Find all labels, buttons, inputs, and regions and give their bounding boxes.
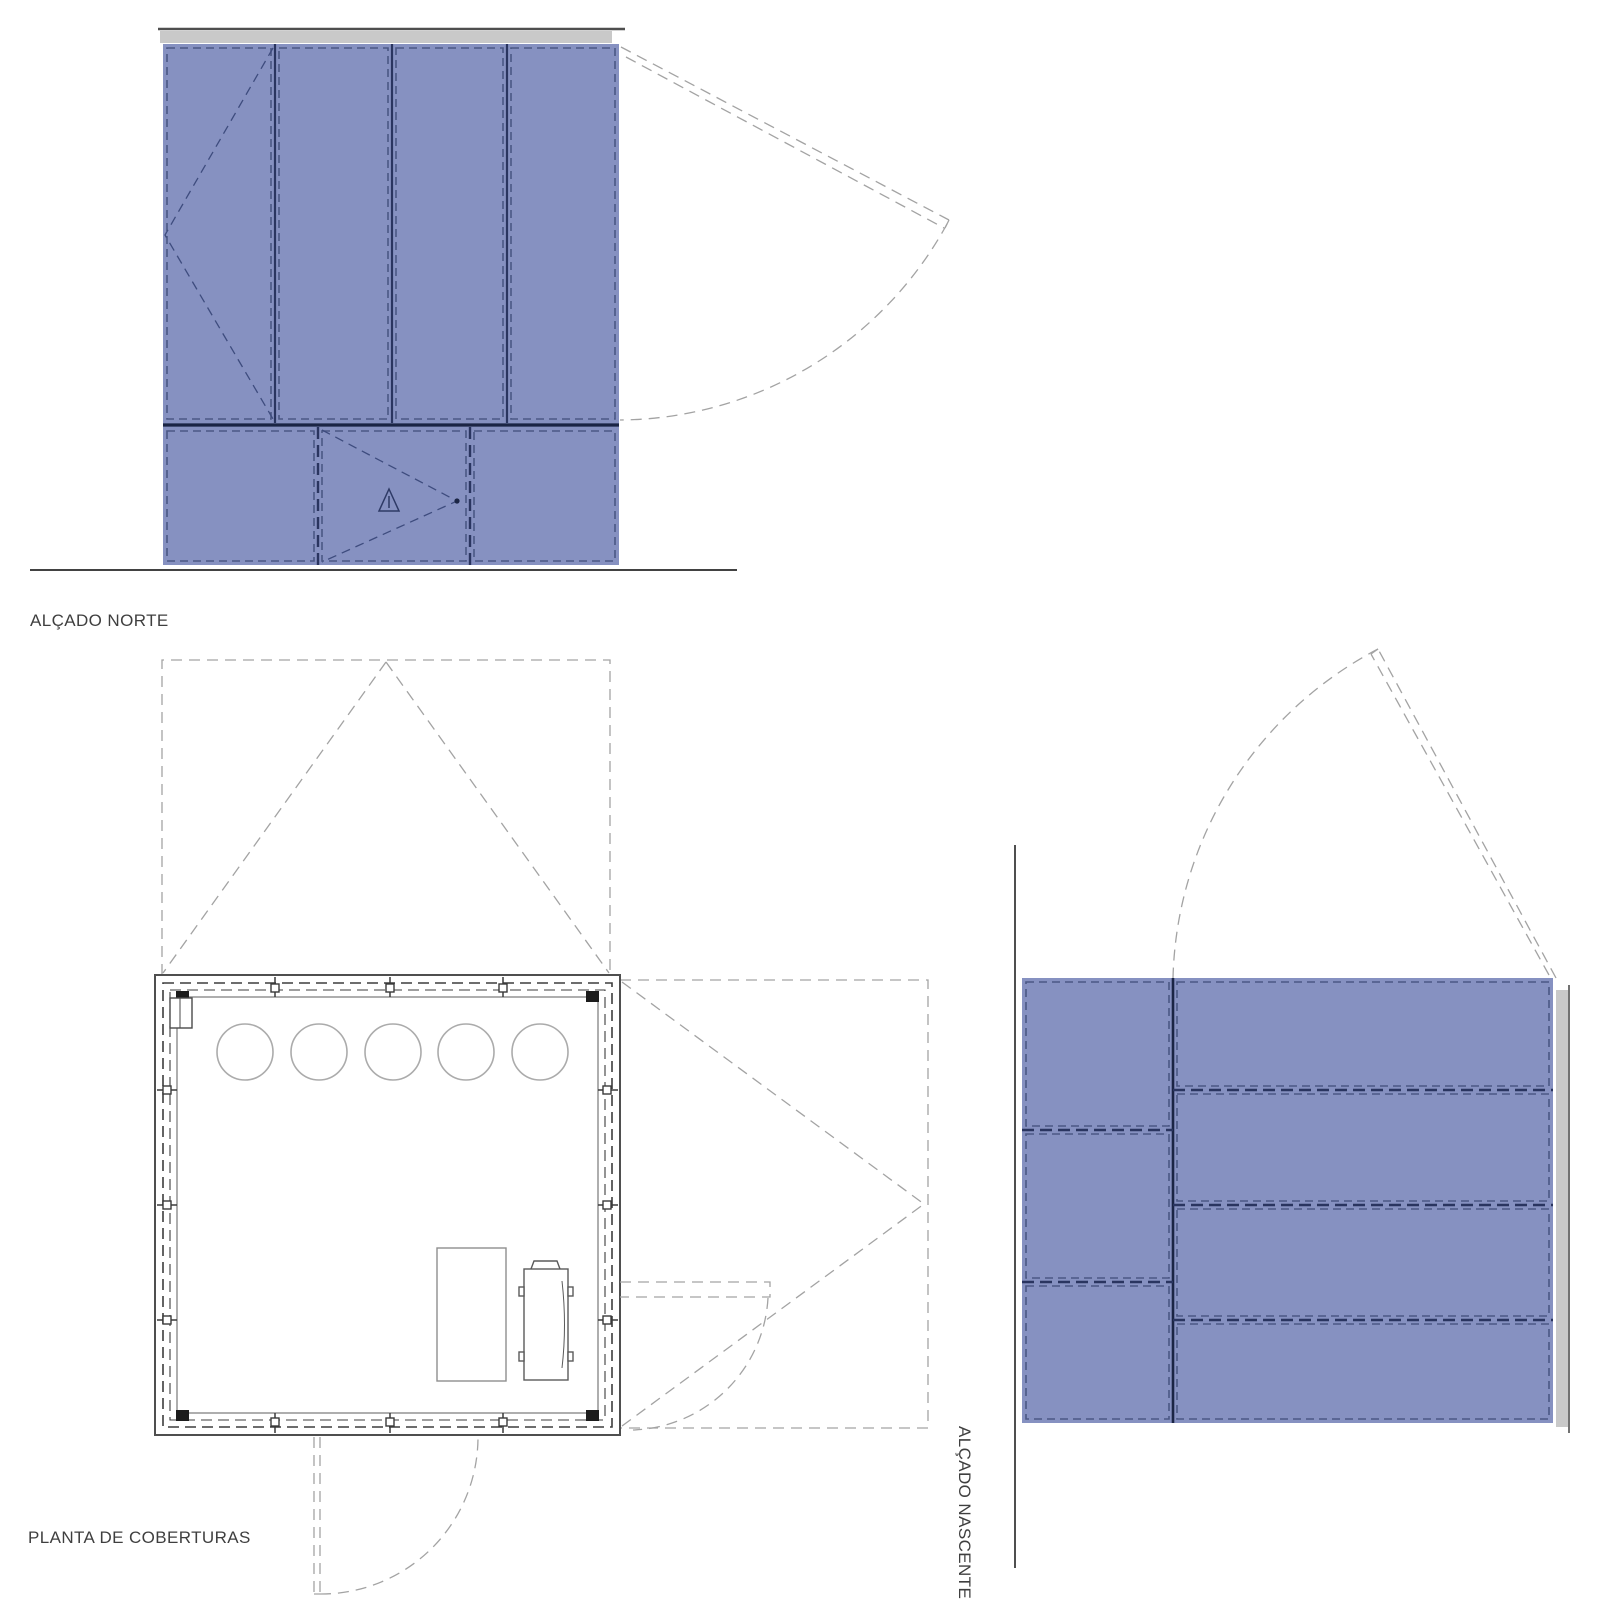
north-elevation-drawing [30, 29, 949, 570]
roof-plan-label: PLANTA DE COBERTURAS [28, 1528, 251, 1548]
corner-post [586, 1410, 599, 1421]
north-door-projection-triangle [163, 662, 609, 973]
east-door-projection-triangle [622, 982, 924, 1426]
appliance-clip [568, 1352, 573, 1361]
door-leaf-dashed [1378, 649, 1556, 978]
appliance-clip [568, 1287, 573, 1296]
north-door-projection-rect [162, 660, 610, 975]
door-leaf-dashed [1371, 654, 1549, 975]
east-elevation-drawing [1015, 649, 1569, 1568]
water-heater [519, 1261, 573, 1380]
south-door-leaf [314, 1437, 320, 1594]
appliance-clip [519, 1352, 524, 1361]
roof-slab-bar [1556, 990, 1568, 1427]
door-swing-arc [620, 224, 947, 420]
architectural-drawing-sheet: ALÇADO NORTE PLANTA DE COBERTURAS ALÇADO… [0, 0, 1600, 1600]
door-leaf-dashed [621, 47, 949, 220]
corner-post [176, 1410, 189, 1421]
appliance-body [524, 1269, 568, 1380]
table [437, 1248, 506, 1381]
drawing-canvas [0, 0, 1600, 1600]
corner-post [586, 991, 599, 1002]
facade-body [1022, 978, 1553, 1423]
roof-plan-drawing [155, 660, 928, 1594]
east-elevation-label: ALÇADO NASCENTE [954, 1426, 974, 1599]
opening-pivot-dot [454, 498, 459, 503]
appliance-handle [531, 1261, 560, 1269]
east-small-door-swing-arc [633, 1298, 768, 1430]
door-swing-arc [1173, 649, 1378, 978]
east-small-door-leaf [620, 1282, 770, 1297]
east-door-projection-rect [620, 980, 928, 1428]
appliance-clip [519, 1287, 524, 1296]
south-door-swing-arc [320, 1437, 478, 1594]
door-leaf-dashed [626, 57, 944, 228]
north-elevation-label: ALÇADO NORTE [30, 611, 169, 631]
wall-fixture-box [170, 998, 192, 1028]
roof-slab-bar [160, 31, 612, 43]
